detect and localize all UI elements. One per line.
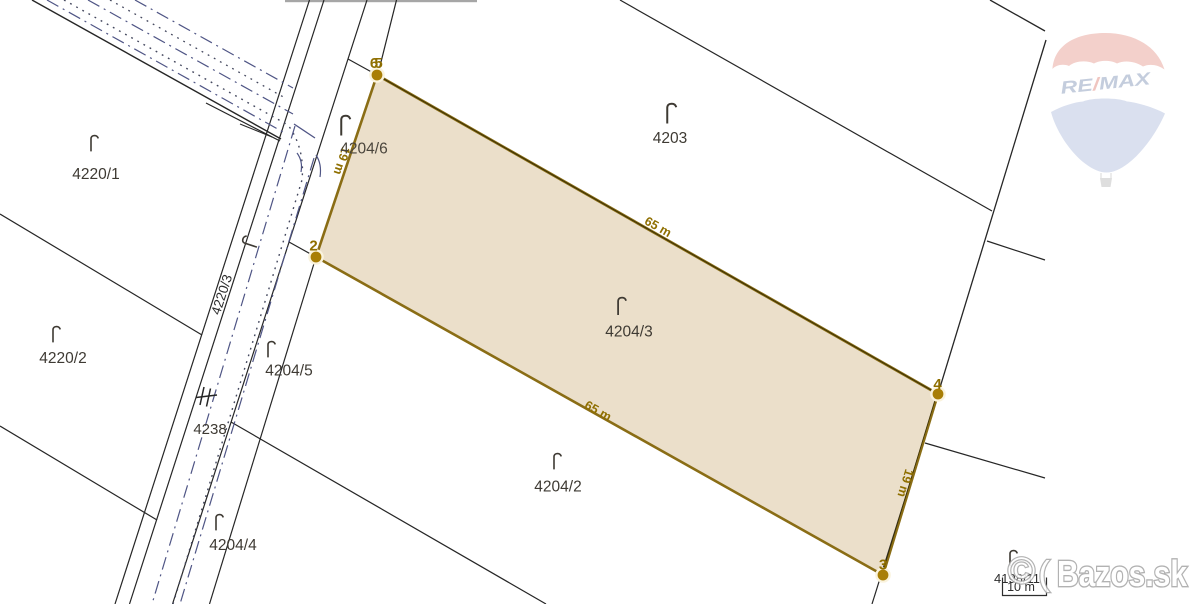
svg-text:2: 2 xyxy=(309,238,317,255)
svg-text:4204/4: 4204/4 xyxy=(209,537,257,554)
svg-text:4204/6: 4204/6 xyxy=(340,141,387,158)
svg-text:4220/1: 4220/1 xyxy=(72,166,119,183)
svg-text:4220/2: 4220/2 xyxy=(39,350,86,367)
svg-text:3: 3 xyxy=(879,557,887,574)
svg-text:©: © xyxy=(1008,550,1035,591)
svg-text:Bazos.sk: Bazos.sk xyxy=(1057,553,1188,594)
svg-text:5: 5 xyxy=(374,55,382,72)
svg-text:4204/3: 4204/3 xyxy=(605,324,652,341)
svg-text:4203: 4203 xyxy=(653,130,687,147)
svg-text:4204/2: 4204/2 xyxy=(534,479,581,496)
svg-text:(: ( xyxy=(1038,555,1050,593)
svg-text:4: 4 xyxy=(933,376,942,393)
svg-text:4204/5: 4204/5 xyxy=(265,363,312,380)
svg-text:4238: 4238 xyxy=(193,421,226,438)
